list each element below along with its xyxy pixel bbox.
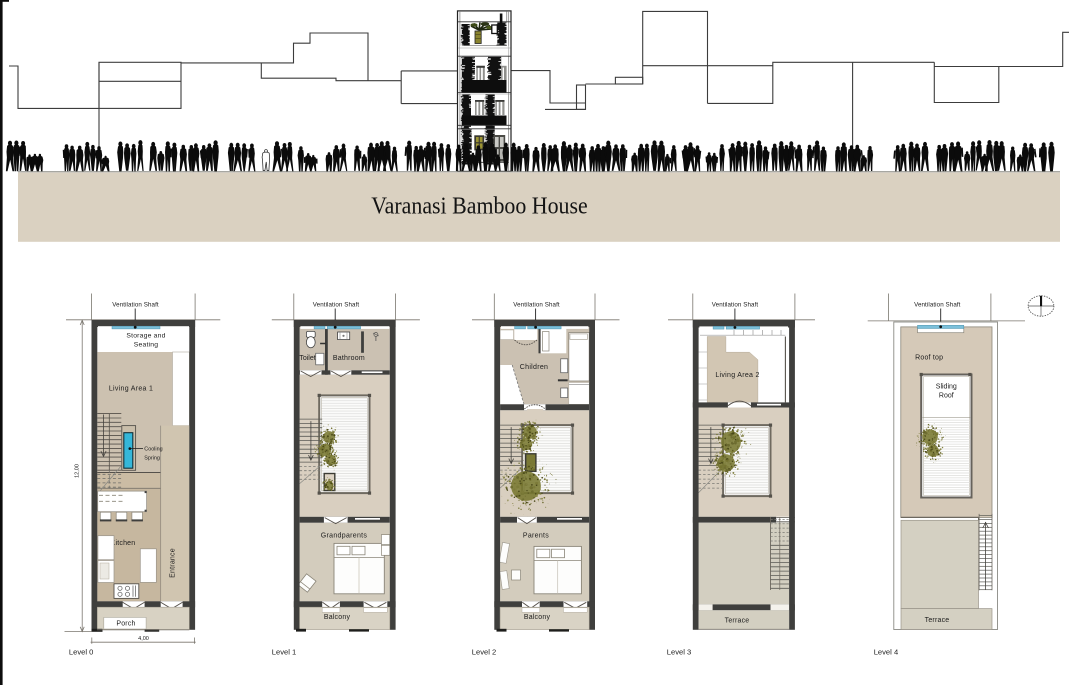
svg-text:Ventilation Shaft: Ventilation Shaft bbox=[513, 302, 560, 309]
svg-text:Ventilation Shaft: Ventilation Shaft bbox=[112, 302, 159, 309]
svg-text:Toilet: Toilet bbox=[299, 355, 315, 362]
svg-text:Porch: Porch bbox=[116, 621, 135, 628]
svg-text:Ventilation Shaft: Ventilation Shaft bbox=[313, 302, 360, 309]
svg-text:12,00: 12,00 bbox=[75, 464, 81, 478]
svg-text:Level 1: Level 1 bbox=[272, 648, 297, 657]
svg-text:Roof: Roof bbox=[939, 393, 954, 400]
svg-text:Roof top: Roof top bbox=[915, 355, 943, 362]
svg-text:Entrance: Entrance bbox=[170, 548, 177, 578]
svg-text:Sliding: Sliding bbox=[936, 384, 957, 391]
svg-text:Level 3: Level 3 bbox=[667, 648, 692, 657]
svg-text:Level 2: Level 2 bbox=[472, 648, 497, 657]
svg-text:Living Area 1: Living Area 1 bbox=[109, 386, 153, 393]
svg-text:Varanasi Bamboo House: Varanasi Bamboo House bbox=[371, 193, 588, 220]
svg-text:Cooling: Cooling bbox=[144, 447, 162, 453]
svg-text:Seating: Seating bbox=[134, 342, 158, 349]
svg-text:Children: Children bbox=[520, 364, 548, 371]
svg-text:Grandparents: Grandparents bbox=[321, 533, 368, 540]
svg-text:Spring: Spring bbox=[144, 456, 160, 462]
svg-text:Parents: Parents bbox=[523, 533, 549, 540]
svg-text:Balcony: Balcony bbox=[324, 614, 351, 621]
svg-text:Bathroom: Bathroom bbox=[333, 355, 365, 362]
svg-text:Ventilation Shaft: Ventilation Shaft bbox=[712, 302, 759, 309]
svg-text:Terrace: Terrace bbox=[725, 618, 750, 625]
svg-text:Level 0: Level 0 bbox=[69, 648, 94, 657]
svg-text:Ventilation Shaft: Ventilation Shaft bbox=[914, 302, 961, 309]
svg-text:4,00: 4,00 bbox=[138, 636, 149, 642]
svg-text:Storage and: Storage and bbox=[126, 333, 165, 340]
svg-text:Level 4: Level 4 bbox=[874, 648, 899, 657]
svg-text:Living Area 2: Living Area 2 bbox=[715, 372, 759, 379]
svg-text:Balcony: Balcony bbox=[524, 614, 551, 621]
svg-text:Terrace: Terrace bbox=[925, 617, 950, 624]
